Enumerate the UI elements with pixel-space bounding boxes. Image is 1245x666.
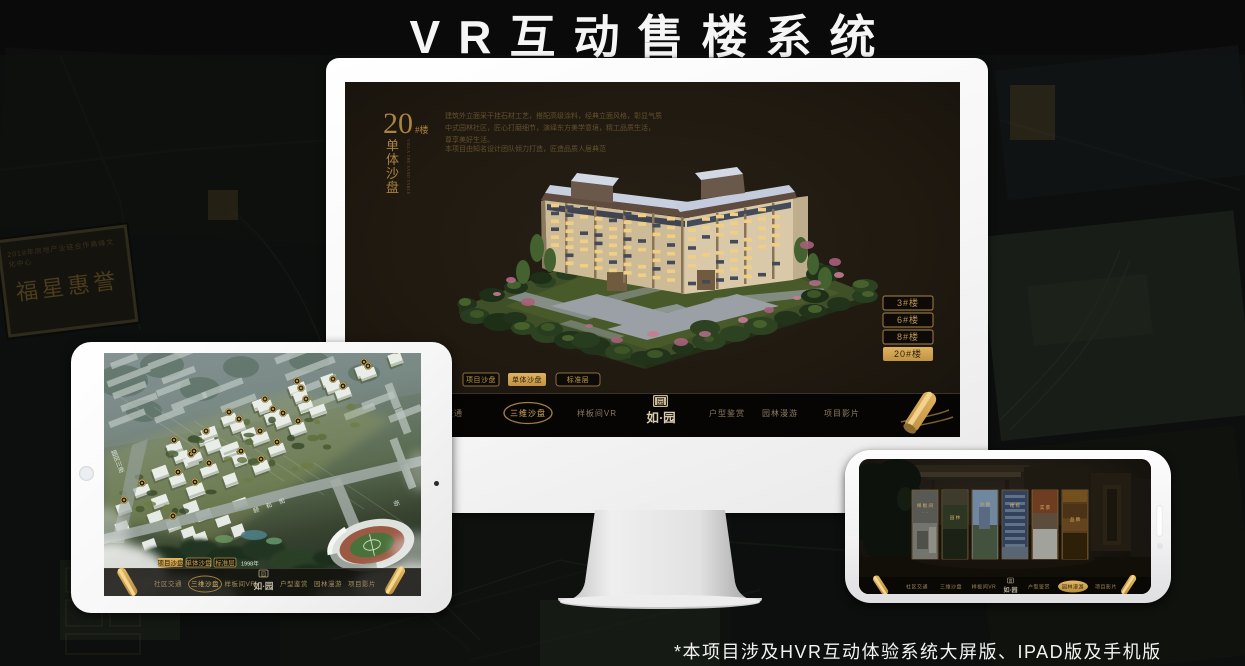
svg-text:园: 园: [657, 398, 665, 407]
svg-text:样板间VR: 样板间VR: [972, 584, 996, 591]
svg-text:品 牌: 品 牌: [1070, 516, 1081, 523]
svg-text:园: 园: [1009, 578, 1013, 583]
svg-text:· · ·: · · ·: [922, 510, 929, 515]
svg-text:20#楼: 20#楼: [894, 348, 922, 359]
svg-text:园林漫游: 园林漫游: [1062, 584, 1084, 591]
svg-text:楼 栋: 楼 栋: [1010, 502, 1021, 509]
svg-text:#楼: #楼: [415, 124, 429, 135]
svg-text:沙: 沙: [386, 166, 399, 181]
svg-text:园: 园: [261, 572, 266, 578]
svg-text:如·园: 如·园: [254, 581, 274, 591]
svg-text:三维沙盘: 三维沙盘: [940, 584, 962, 591]
svg-text:沙 盘: 沙 盘: [980, 501, 991, 507]
svg-text:园 林: 园 林: [950, 514, 961, 521]
svg-text:20: 20: [383, 107, 413, 140]
svg-text:项目沙盘: 项目沙盘: [466, 375, 496, 384]
svg-text:项目影片: 项目影片: [824, 408, 860, 418]
svg-text:标准层: 标准层: [567, 375, 590, 384]
svg-text:3#楼: 3#楼: [897, 297, 919, 308]
svg-text:体: 体: [386, 152, 399, 167]
svg-text:项目影片: 项目影片: [1095, 584, 1117, 591]
svg-text:建筑外立面采干挂石材工艺，搭配高级涂料，经典立面风格，彰显气: 建筑外立面采干挂石材工艺，搭配高级涂料，经典立面风格，彰显气质: [445, 111, 662, 120]
svg-text:单体沙盘: 单体沙盘: [512, 375, 542, 384]
svg-text:盘: 盘: [386, 180, 399, 195]
svg-text:尊享美好生活。: 尊享美好生活。: [445, 135, 494, 144]
svg-text:实 景: 实 景: [1040, 504, 1051, 511]
svg-text:如·园: 如·园: [646, 410, 675, 425]
svg-text:本项目由知名设计团队倾力打造，匠造品质人居典范: 本项目由知名设计团队倾力打造，匠造品质人居典范: [445, 144, 606, 153]
svg-text:户型鉴赏: 户型鉴赏: [709, 408, 745, 418]
svg-text:三维沙盘: 三维沙盘: [510, 408, 546, 418]
svg-text:6#楼: 6#楼: [897, 314, 919, 325]
svg-text:8#楼: 8#楼: [897, 331, 919, 342]
svg-text:园林漫游: 园林漫游: [762, 408, 798, 418]
svg-text:单: 单: [386, 138, 399, 153]
svg-text:户型鉴赏: 户型鉴赏: [1028, 584, 1050, 591]
svg-text:社区交通: 社区交通: [906, 584, 928, 591]
svg-text:样板间VR: 样板间VR: [577, 408, 617, 418]
svg-text:中式园林社区，匠心打磨细节，演绎东方美学意境，精工品质生活，: 中式园林社区，匠心打磨细节，演绎东方美学意境，精工品质生活，: [445, 123, 655, 132]
svg-text:VILLA THE SAND TABLE: VILLA THE SAND TABLE: [406, 139, 411, 195]
svg-text:样 板 间: 样 板 间: [917, 502, 934, 509]
